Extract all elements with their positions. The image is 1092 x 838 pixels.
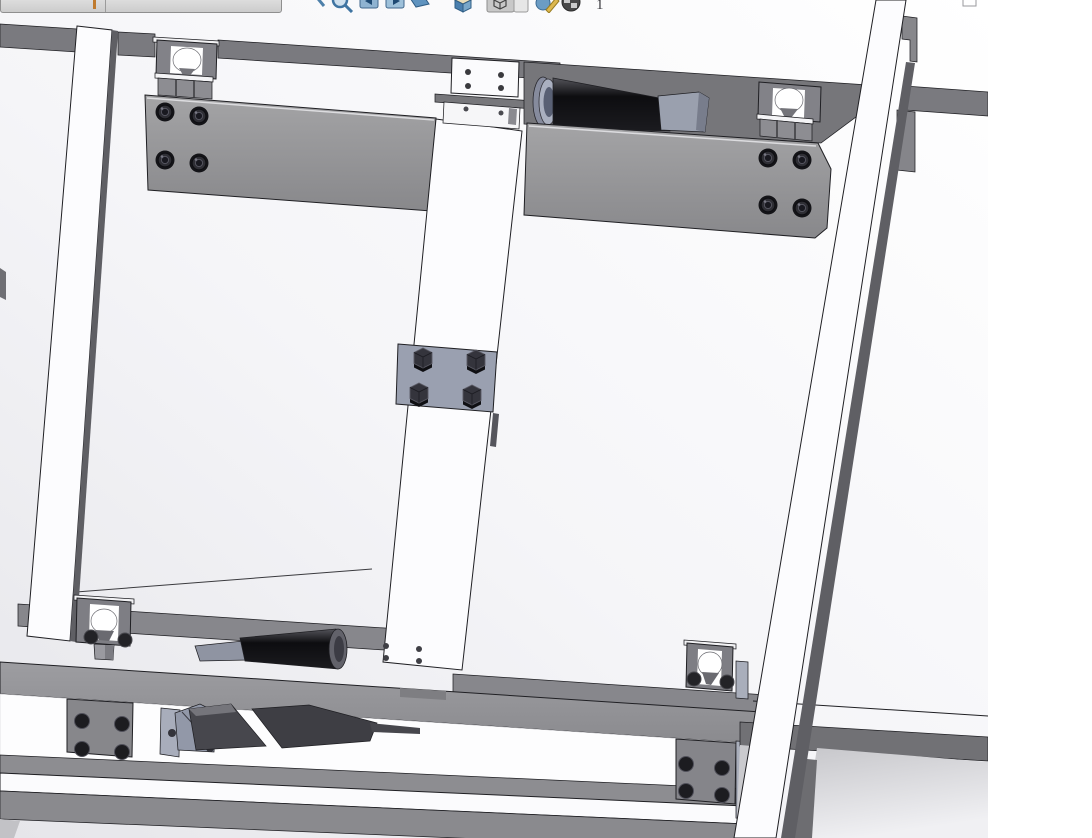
heads-up-toolbar: 1 — [300, 0, 620, 13]
previous-view-icon[interactable] — [356, 0, 384, 13]
app-window: 1 — [0, 0, 1092, 838]
display-style-icon[interactable] — [486, 0, 530, 13]
viewport-3d[interactable] — [0, 0, 988, 838]
right-panel — [988, 0, 1092, 838]
page-number-label: 1 — [596, 0, 604, 13]
bottom-left-bolt-plate[interactable] — [67, 699, 133, 760]
toolbar-divider — [105, 0, 106, 12]
top-right-pin-bracket[interactable] — [757, 82, 821, 141]
top-left-pin-bracket[interactable] — [153, 37, 219, 99]
splice-plate[interactable] — [396, 344, 497, 412]
section-view-icon[interactable] — [406, 0, 434, 13]
floating-toolbar[interactable] — [0, 0, 282, 13]
zoom-to-area-icon[interactable] — [328, 0, 356, 13]
toolbar-accent-tick — [93, 0, 96, 9]
apply-scene-icon[interactable] — [558, 0, 586, 13]
view-orientation-icon[interactable] — [450, 0, 478, 13]
